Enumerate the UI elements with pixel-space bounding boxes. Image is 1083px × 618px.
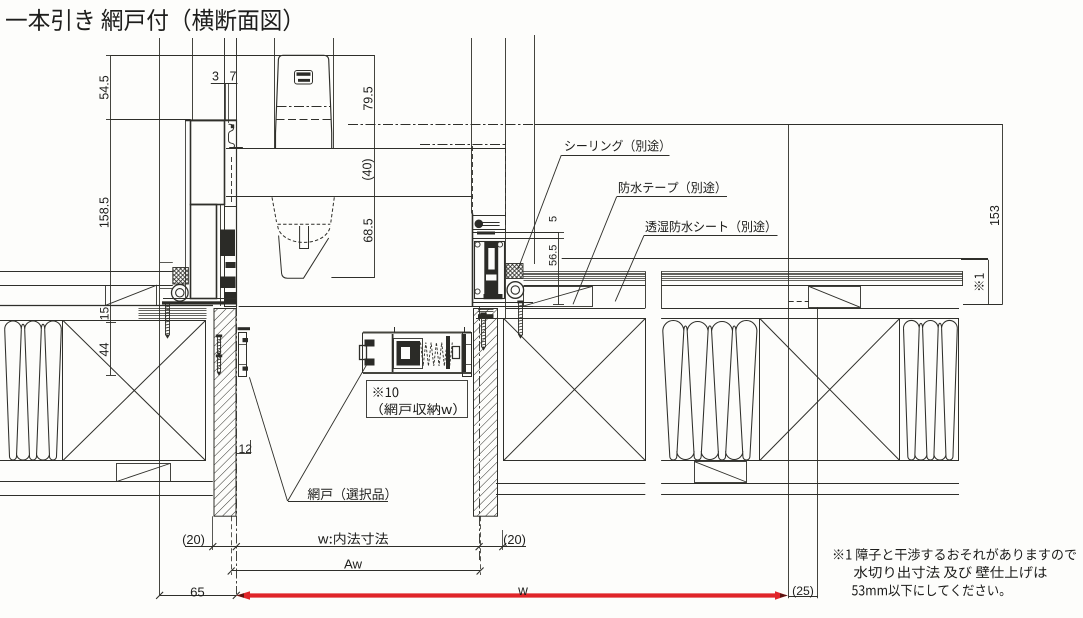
svg-text:65: 65	[190, 585, 205, 600]
svg-text:w: w	[517, 583, 528, 598]
svg-text:54.5: 54.5	[98, 75, 112, 99]
svg-text:3: 3	[212, 70, 219, 84]
svg-text:(20): (20)	[503, 532, 526, 547]
svg-text:(20): (20)	[182, 532, 205, 547]
svg-text:5: 5	[548, 216, 560, 222]
svg-text:158.5: 158.5	[98, 197, 112, 228]
svg-text:44: 44	[98, 343, 112, 357]
svg-text:153: 153	[988, 205, 1002, 226]
svg-text:(25): (25)	[792, 584, 814, 598]
svg-text:56.5: 56.5	[547, 245, 559, 266]
svg-text:(40): (40)	[361, 158, 375, 180]
svg-text:Aw: Aw	[344, 557, 363, 572]
svg-text:15: 15	[98, 307, 112, 321]
svg-text:79.5: 79.5	[362, 86, 376, 110]
svg-text:68.5: 68.5	[362, 218, 376, 242]
svg-text:7: 7	[230, 70, 237, 84]
